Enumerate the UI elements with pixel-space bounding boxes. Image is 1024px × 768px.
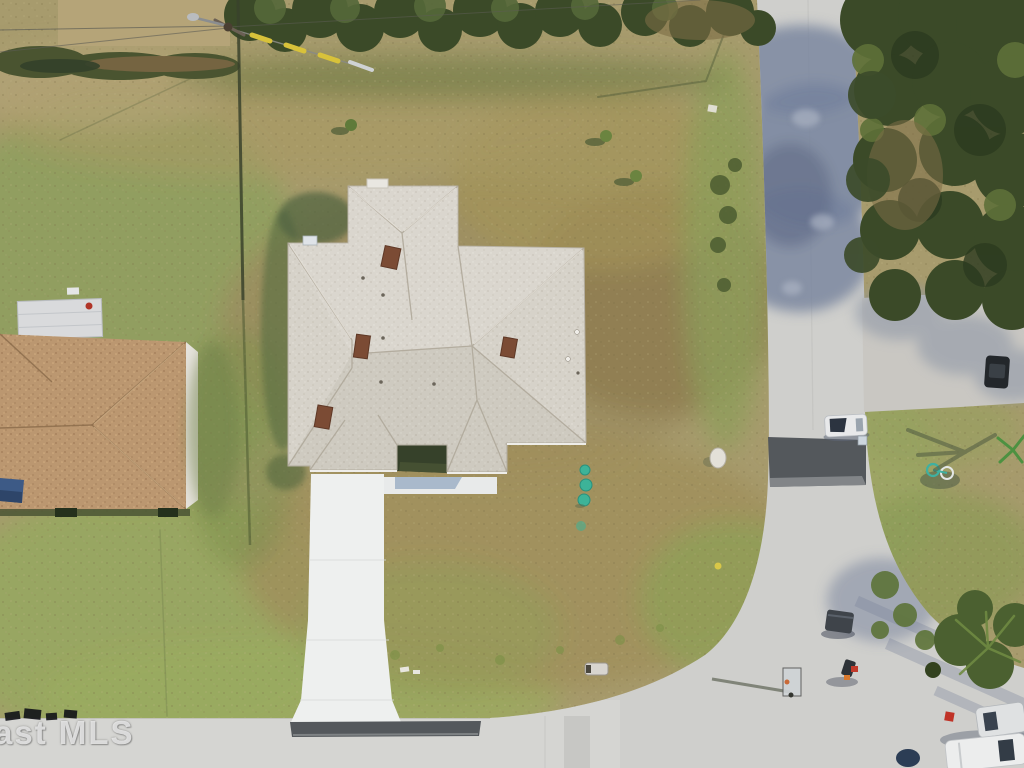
culvert-pipe [585, 663, 608, 675]
aerial-photo-stage: ast MLS [0, 0, 1024, 768]
blue-tarp [0, 478, 24, 503]
blue-item [896, 749, 920, 767]
utility-pole-top [224, 23, 233, 32]
yellow-flower [715, 563, 722, 570]
chimney-cap [367, 179, 388, 188]
rooftop-unit [303, 236, 317, 245]
dark-car-in-shade [984, 355, 1010, 389]
aerial-photo [0, 0, 1024, 768]
mailbox-white [858, 436, 867, 445]
red-object-on-shed [86, 303, 93, 310]
red-item [944, 711, 954, 721]
